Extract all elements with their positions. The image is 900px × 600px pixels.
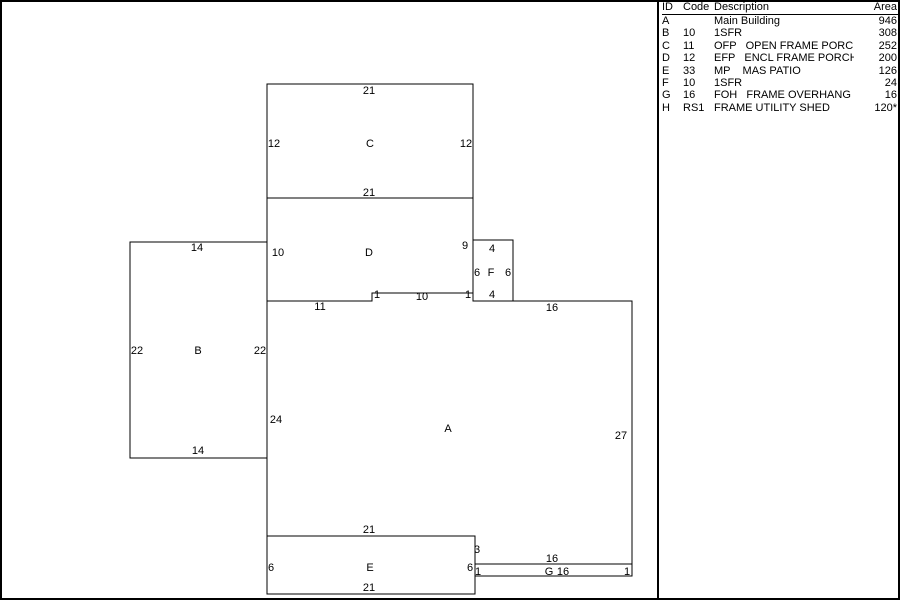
- legend-cell-code: 16: [683, 89, 714, 101]
- shape-label-D: D: [365, 247, 373, 259]
- legend-row-B: B101SFR308: [662, 27, 900, 39]
- legend-header-id: ID: [662, 1, 683, 14]
- dimension-label: 4: [489, 243, 495, 255]
- shape-label-A: A: [444, 423, 452, 435]
- dimension-label: 9: [462, 240, 468, 252]
- dimension-label: 21: [363, 524, 375, 536]
- dimension-label: 24: [270, 414, 282, 426]
- legend-cell-id: F: [662, 77, 683, 89]
- dimension-label: 21: [363, 85, 375, 97]
- shape-label-E: E: [366, 562, 373, 574]
- legend-cell-code: 12: [683, 52, 714, 64]
- legend-cell-code: 10: [683, 27, 714, 39]
- dimension-label: 12: [460, 138, 472, 150]
- dimension-label: 21: [363, 187, 375, 199]
- legend-cell-id: D: [662, 52, 683, 64]
- legend-cell-desc: OFP OPEN FRAME PORCH: [714, 40, 854, 52]
- dimension-label: 6: [474, 267, 480, 279]
- dimension-label: 4: [489, 289, 495, 301]
- legend-cell-desc: 1SFR: [714, 77, 854, 89]
- legend-cell-area: 24: [854, 77, 900, 89]
- legend-row-H: HRS1FRAME UTILITY SHED120*: [662, 102, 900, 114]
- dimension-label: 12: [268, 138, 280, 150]
- legend-rows: AMain Building946B101SFR308C11OFP OPEN F…: [662, 15, 900, 114]
- legend-cell-area: 120*: [854, 102, 900, 114]
- legend-row-E: E33MP MAS PATIO126: [662, 65, 900, 77]
- dimension-label: 3: [474, 544, 480, 556]
- legend-cell-id: B: [662, 27, 683, 39]
- dimension-label: 6: [467, 562, 473, 574]
- shape-label-G: G: [545, 566, 554, 578]
- legend-cell-id: A: [662, 15, 683, 27]
- dimension-label: 11: [314, 301, 325, 313]
- dimension-label: 6: [268, 562, 274, 574]
- dimension-label: 10: [272, 247, 284, 259]
- property-sketch-report: 2112C122110D911011146F641422B22141624A27…: [0, 0, 900, 600]
- dimension-label: 1: [475, 566, 481, 578]
- legend-cell-id: H: [662, 102, 683, 114]
- dimension-label: 14: [191, 242, 203, 254]
- legend-cell-area: 200: [854, 52, 900, 64]
- legend-row-D: D12EFP ENCL FRAME PORCH200: [662, 52, 900, 64]
- legend-cell-area: 308: [854, 27, 900, 39]
- legend-panel: ID Code Description Area AMain Building9…: [657, 0, 900, 600]
- legend-header-area: Area: [854, 1, 900, 14]
- dimension-label: 22: [254, 345, 266, 357]
- dimension-label: 1: [374, 289, 380, 301]
- legend-cell-area: 946: [854, 15, 900, 27]
- legend-cell-code: 10: [683, 77, 714, 89]
- legend-cell-desc: MP MAS PATIO: [714, 65, 854, 77]
- legend-cell-code: 33: [683, 65, 714, 77]
- legend-row-G: G16FOH FRAME OVERHANG16: [662, 89, 900, 101]
- legend-cell-area: 126: [854, 65, 900, 77]
- legend-row-C: C11OFP OPEN FRAME PORCH252: [662, 40, 900, 52]
- shape-label-B: B: [194, 345, 201, 357]
- shape-label-C: C: [366, 138, 374, 150]
- legend-header-description: Description: [714, 1, 854, 14]
- dimension-label: 16: [546, 302, 558, 314]
- legend-cell-desc: FRAME UTILITY SHED: [714, 102, 854, 114]
- legend-header-code: Code: [683, 1, 714, 14]
- dimension-label: 22: [131, 345, 143, 357]
- dimension-label: 27: [615, 430, 627, 442]
- legend-cell-code: RS1: [683, 102, 714, 114]
- shape-G-outline: [475, 564, 632, 576]
- legend-row-A: AMain Building946: [662, 15, 900, 27]
- dimension-label: 16: [557, 566, 569, 578]
- legend-cell-area: 16: [854, 89, 900, 101]
- dimension-label: 16: [546, 553, 558, 565]
- shape-label-F: F: [488, 267, 495, 279]
- legend-header-row: ID Code Description Area: [662, 1, 900, 15]
- dimension-label: 1: [624, 566, 630, 578]
- legend-cell-id: C: [662, 40, 683, 52]
- legend-cell-id: G: [662, 89, 683, 101]
- legend-cell-id: E: [662, 65, 683, 77]
- dimension-label: 6: [505, 267, 511, 279]
- legend-cell-desc: 1SFR: [714, 27, 854, 39]
- dimension-label: 14: [192, 445, 204, 457]
- dimension-label: 10: [416, 291, 428, 303]
- legend-cell-area: 252: [854, 40, 900, 52]
- legend-cell-desc: EFP ENCL FRAME PORCH: [714, 52, 854, 64]
- legend-row-F: F101SFR24: [662, 77, 900, 89]
- legend-cell-code: 11: [683, 40, 714, 52]
- dimension-label: 1: [465, 289, 471, 301]
- legend-cell-desc: Main Building: [714, 15, 854, 27]
- dimension-label: 21: [363, 582, 375, 594]
- legend-cell-desc: FOH FRAME OVERHANG: [714, 89, 854, 101]
